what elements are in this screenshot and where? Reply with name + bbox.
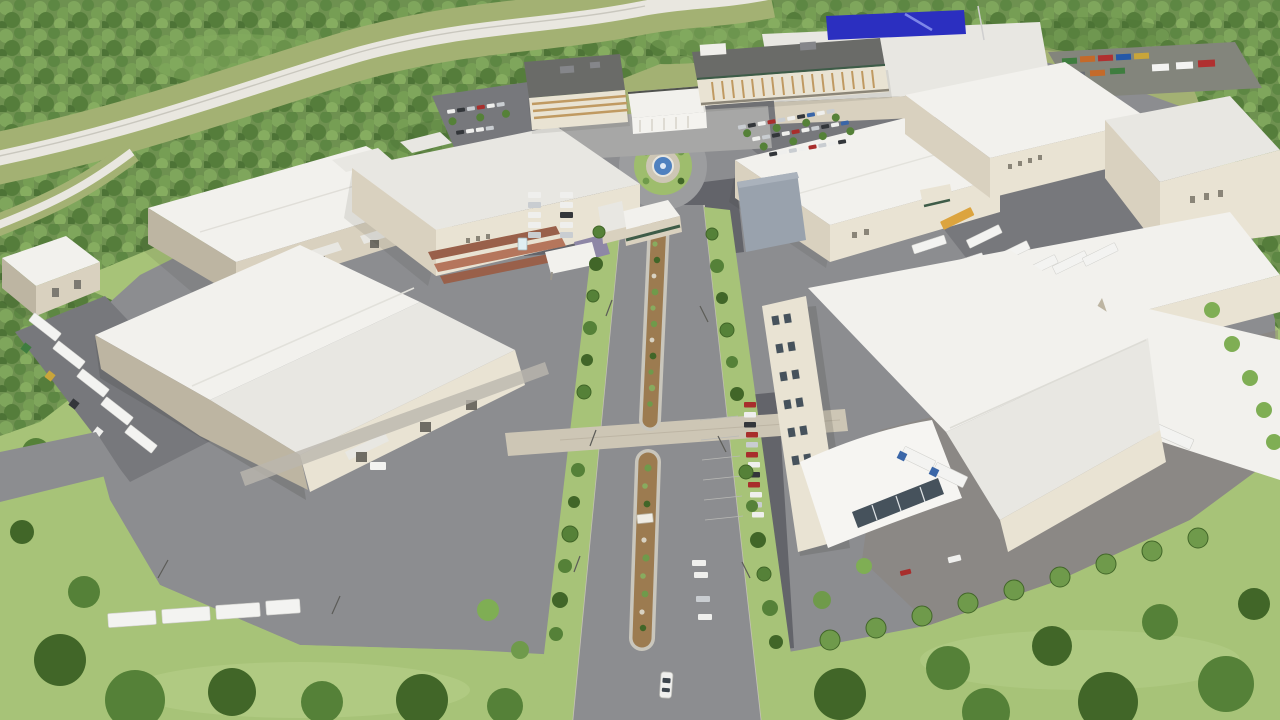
dock-door	[52, 288, 59, 297]
office-building-west	[524, 54, 630, 134]
median-planting-south	[637, 462, 654, 638]
rear-window	[662, 688, 670, 693]
wall-door	[852, 232, 857, 238]
windshield	[662, 678, 670, 684]
wall-vent	[486, 234, 490, 239]
flat-roof-service-building	[737, 172, 806, 252]
penthouse	[700, 43, 727, 56]
dock-door	[356, 452, 367, 462]
box-truck	[266, 599, 301, 615]
wall-door	[864, 229, 869, 235]
dock-door	[74, 280, 81, 289]
fountain-spray	[660, 163, 666, 169]
dock-door	[420, 422, 431, 432]
shrub	[643, 178, 650, 185]
rendering-canvas: daytime bird's-eye view, computer-genera…	[0, 0, 1280, 720]
entry-pavilion	[628, 86, 707, 134]
box-truck	[518, 238, 527, 250]
rooftop-unit	[800, 41, 817, 50]
wall-vent	[476, 236, 480, 241]
rooftop-unit	[560, 66, 574, 74]
box-truck-at-dock	[370, 462, 386, 470]
wall-vent	[466, 238, 470, 243]
rooftop-unit	[590, 62, 600, 69]
shrub	[678, 178, 685, 185]
trailer	[1176, 62, 1193, 70]
canopy-column	[551, 272, 552, 280]
median-planting-north	[647, 222, 661, 420]
white-car-driving	[659, 672, 673, 699]
aerial-rendering: daytime bird's-eye view, computer-genera…	[0, 0, 1280, 720]
trailer	[1152, 64, 1169, 72]
monument-sign	[637, 513, 654, 524]
